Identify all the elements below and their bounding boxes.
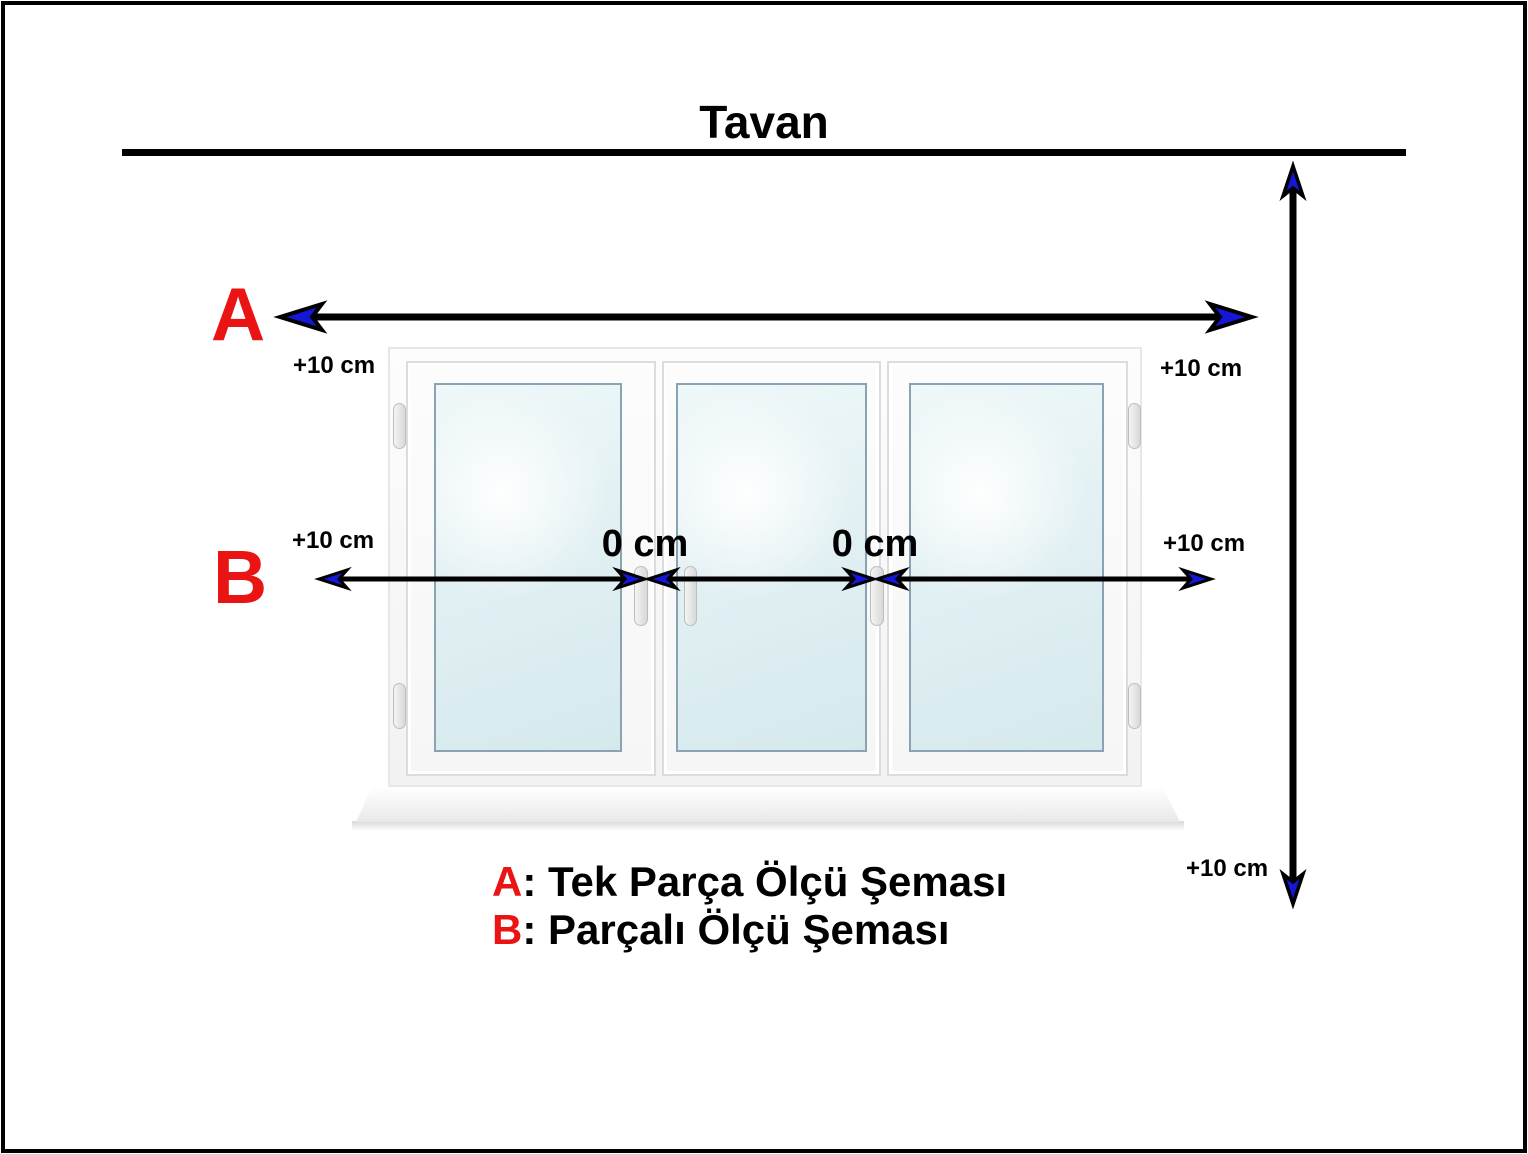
scheme-b-gap-right-label: 0 cm (832, 523, 919, 566)
legend-line-b: B: Parçalı Ölçü Şeması (492, 906, 950, 954)
scheme-b-arrow-segment-2 (645, 563, 877, 595)
window-sill (356, 787, 1180, 822)
scheme-a-marker: A (211, 277, 265, 352)
legend-a-text: : Tek Parça Ölçü Şeması (522, 858, 1007, 905)
legend-b-text: : Parçalı Ölçü Şeması (522, 906, 949, 953)
window-hinge-bottom-right (1128, 683, 1141, 729)
scheme-b-marker: B (213, 540, 267, 615)
scheme-a-arrow (276, 300, 1256, 334)
scheme-b-right-allowance: +10 cm (1163, 530, 1245, 558)
scheme-b-arrow-segment-1 (316, 563, 648, 595)
scheme-b-gap-left-label: 0 cm (602, 523, 689, 566)
window-sill-shadow (352, 821, 1184, 830)
legend-a-key: A (492, 858, 522, 905)
height-arrow (1276, 162, 1310, 908)
window-hinge-top-left (393, 403, 406, 449)
ceiling-line (122, 149, 1406, 156)
height-bottom-allowance: +10 cm (1186, 855, 1268, 883)
ceiling-title: Tavan (0, 95, 1528, 149)
scheme-a-left-allowance: +10 cm (293, 352, 375, 380)
measurement-diagram: Tavan A +10 cm +10 cm B (0, 0, 1528, 1154)
scheme-b-arrow-segment-3 (874, 563, 1214, 595)
window-hinge-bottom-left (393, 683, 406, 729)
window-hinge-top-right (1128, 403, 1141, 449)
legend-b-key: B (492, 906, 522, 953)
scheme-a-right-allowance: +10 cm (1160, 355, 1242, 383)
scheme-b-left-allowance: +10 cm (292, 527, 374, 555)
legend-line-a: A: Tek Parça Ölçü Şeması (492, 858, 1007, 906)
